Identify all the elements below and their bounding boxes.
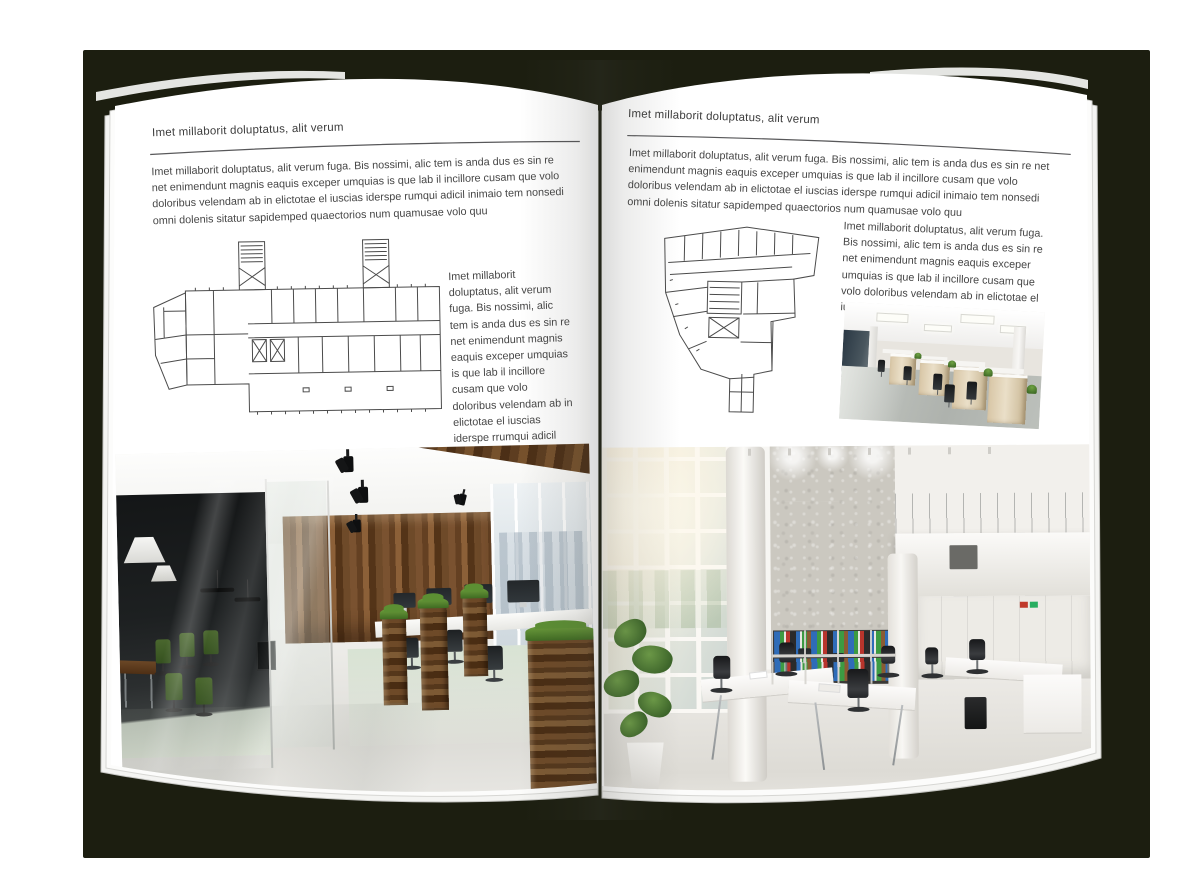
office-chair [878,360,886,372]
right-intro-paragraph: Imet millaborit doluptatus, alit verum f… [627,145,1053,224]
pendant-lamp [200,588,234,593]
pendant-lamp [151,565,177,582]
office-chair [969,639,985,660]
safety-sign-green [1030,601,1038,607]
vent-grille [950,545,977,569]
desk-cabinet [987,374,1028,425]
green-chair [203,630,219,654]
concrete-wall [770,446,896,630]
green-chair [179,633,195,657]
ceiling-spotlight [358,487,368,503]
glass-railing [895,493,1090,534]
floor-plan-wide [150,230,445,419]
wood-planter [420,606,449,711]
office-chair [933,373,943,389]
ceiling-light [960,314,994,325]
left-page-title: Imet millaborit doluptatus, alit verum [152,115,572,139]
ceiling-light [924,324,952,333]
spine-shadow-left [520,60,600,820]
spine-shadow-right [600,60,680,820]
green-chair [195,677,213,704]
green-chair [165,673,183,700]
binder-row [774,658,894,682]
ceiling-spotlight [352,519,360,532]
left-intro-paragraph: Imet millaborit doluptatus, alit verum f… [151,152,571,229]
balcony-fascia [895,532,1091,597]
column [726,447,767,782]
office-chair [903,366,912,380]
wood-planter [462,596,488,677]
ceiling-spotlight [343,456,353,472]
drawing-sheet [818,683,841,693]
pedestal-cabinet [1023,675,1082,733]
safety-sign-red [1020,601,1028,607]
office-photo-small [839,302,1045,429]
office-chair [966,381,977,399]
pendant-lamp [235,597,261,602]
green-chair [155,639,171,663]
office-chair [944,384,955,402]
meeting-table [120,660,156,674]
office-chair [446,629,462,651]
desk-plant [984,368,993,376]
binder-shelves [771,629,896,684]
brochure-spread-mockup: Imet millaborit doluptatus, alit verum I… [0,0,1200,891]
ceiling-light [876,313,908,324]
waste-bin [965,697,987,730]
right-page-title: Imet millaborit doluptatus, alit verum [628,108,1048,134]
wood-planter [382,617,408,706]
pendant-lamp [123,537,166,564]
office-chair [713,656,730,679]
desk-plant [948,360,956,367]
binder-row [774,631,894,655]
mezzanine [895,444,1091,597]
floor-plant [1027,384,1037,394]
office-chair [925,647,938,664]
desk-plant [914,352,921,358]
